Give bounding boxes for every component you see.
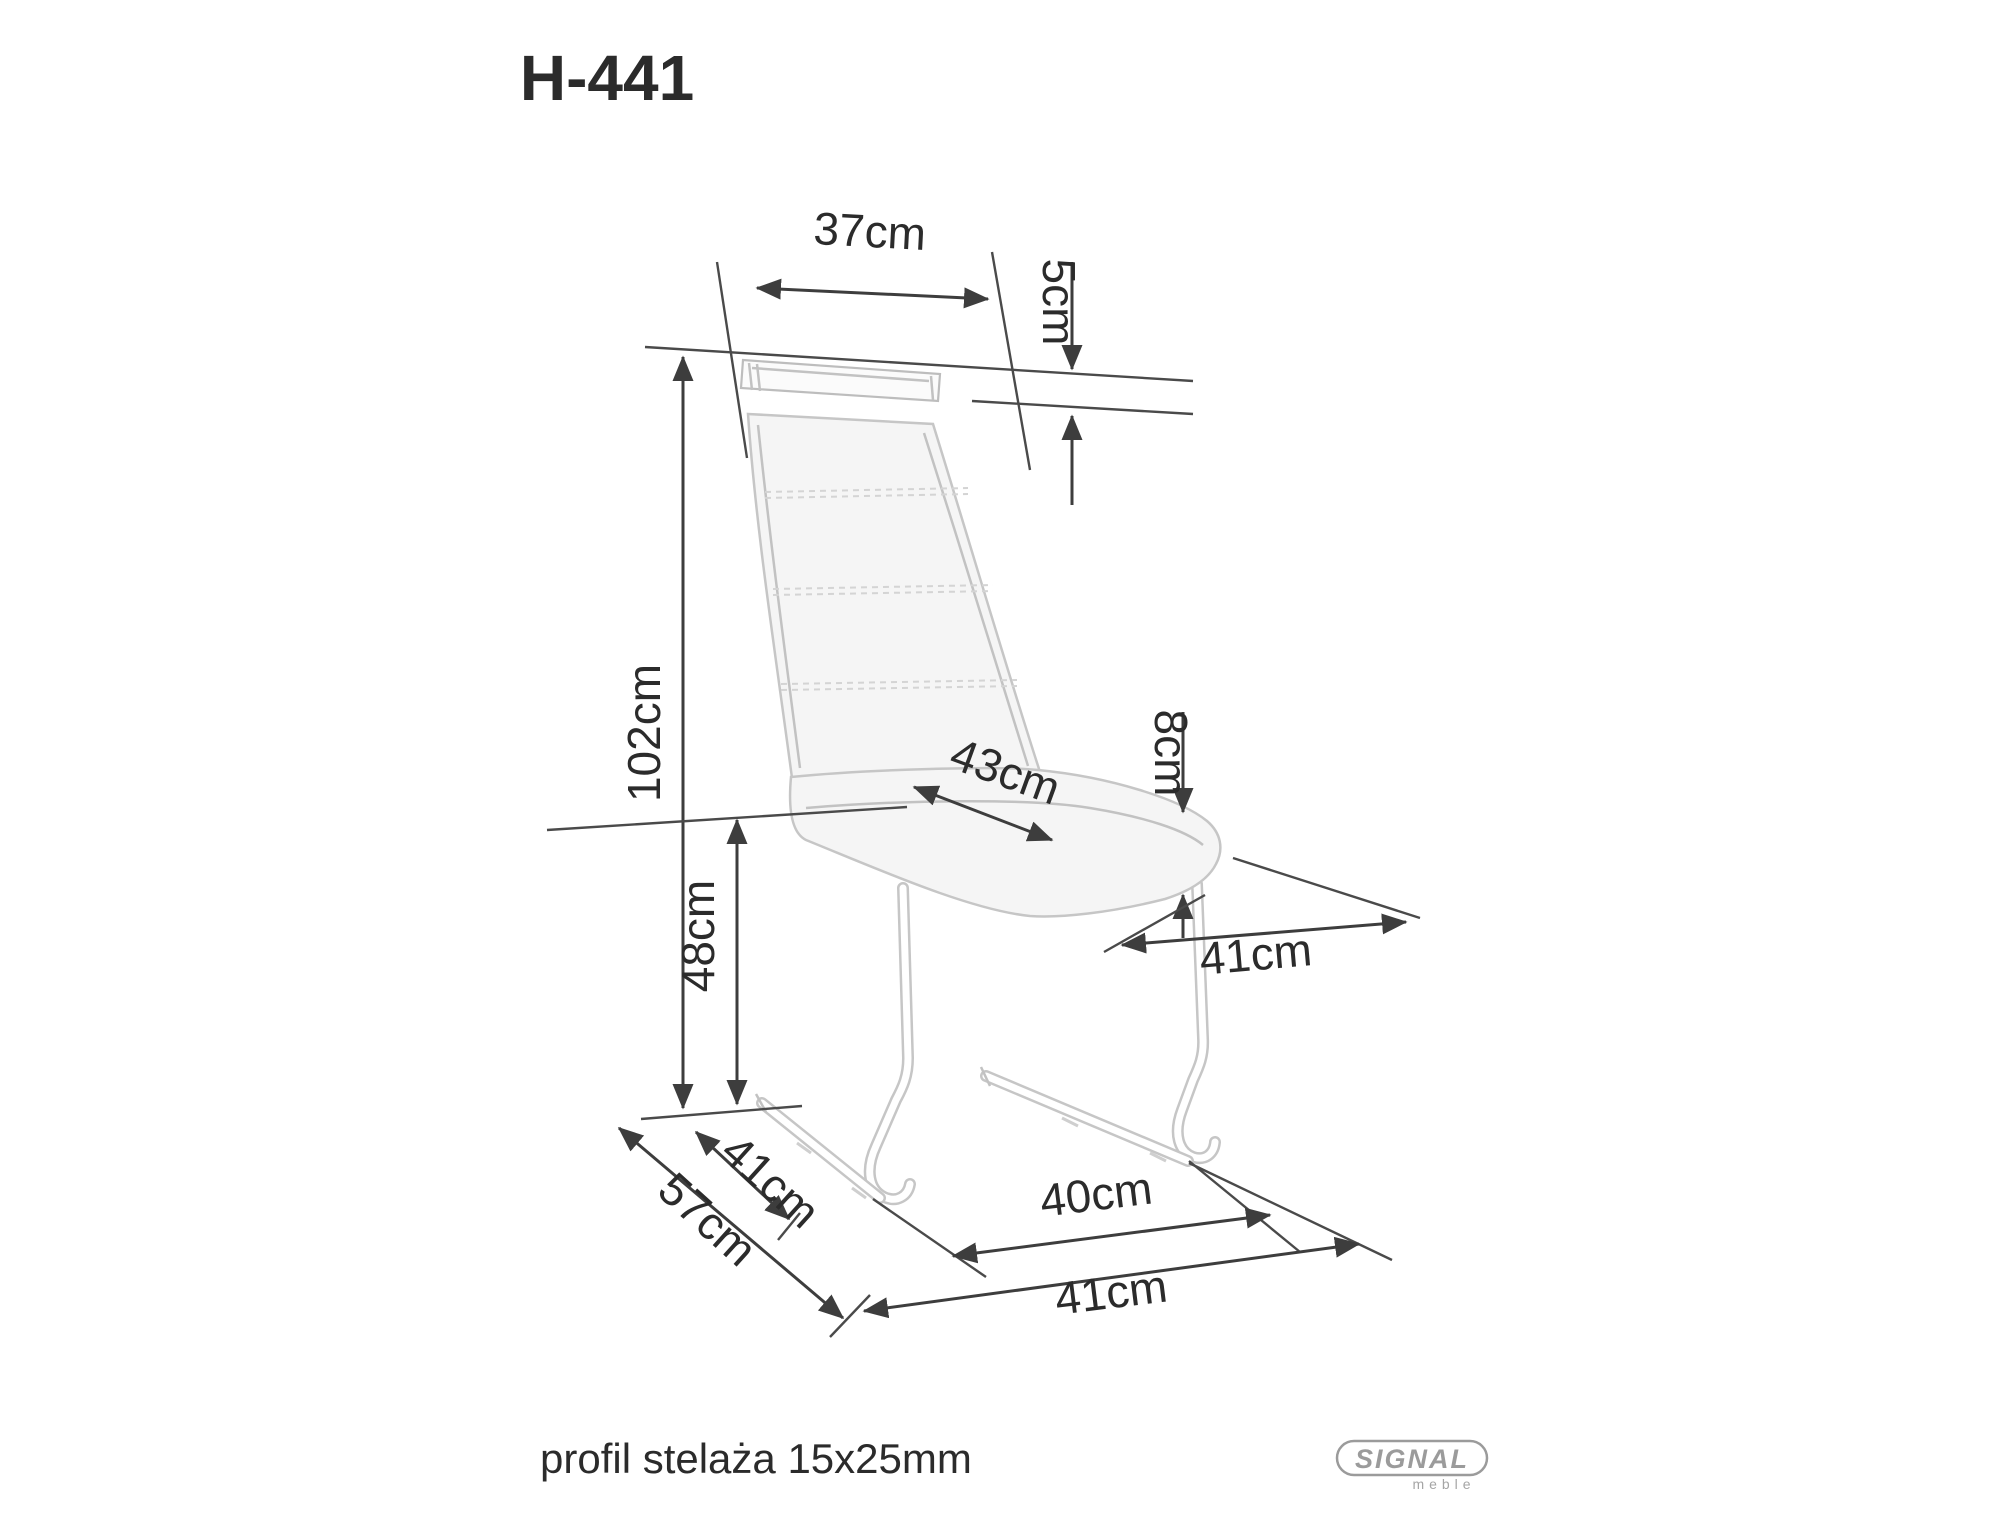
dimension-label-backrest-width: 37cm xyxy=(812,202,927,260)
frame-near-runner-hl xyxy=(986,1076,1188,1161)
dimension-label-total-height: 102cm xyxy=(618,664,670,802)
backrest-cushion xyxy=(748,414,1040,780)
dimension-label-handle-gap: 5cm xyxy=(1033,259,1085,346)
diagram-page: 37cm 5cm 102cm 48cm 43cm 8cm 41cm xyxy=(0,0,2000,1530)
page-title: H-441 xyxy=(520,42,694,114)
brand-logo: SIGNAL meble xyxy=(1337,1441,1487,1492)
dimension-label-seat-thickness: 8cm xyxy=(1145,710,1197,797)
dimension-label-seat-height: 48cm xyxy=(672,880,724,992)
brand-logo-subtext: meble xyxy=(1412,1476,1475,1492)
chair-dimension-diagram: 37cm 5cm 102cm 48cm 43cm 8cm 41cm xyxy=(0,0,2000,1530)
dimension-label-seat-depth: 41cm xyxy=(1197,923,1314,985)
footer-note: profil stelaża 15x25mm xyxy=(540,1435,972,1482)
dimension-label-base-width: 41cm xyxy=(1052,1259,1170,1324)
dimension-label-base-inner-width: 40cm xyxy=(1037,1161,1155,1226)
brand-logo-text: SIGNAL xyxy=(1355,1444,1469,1474)
